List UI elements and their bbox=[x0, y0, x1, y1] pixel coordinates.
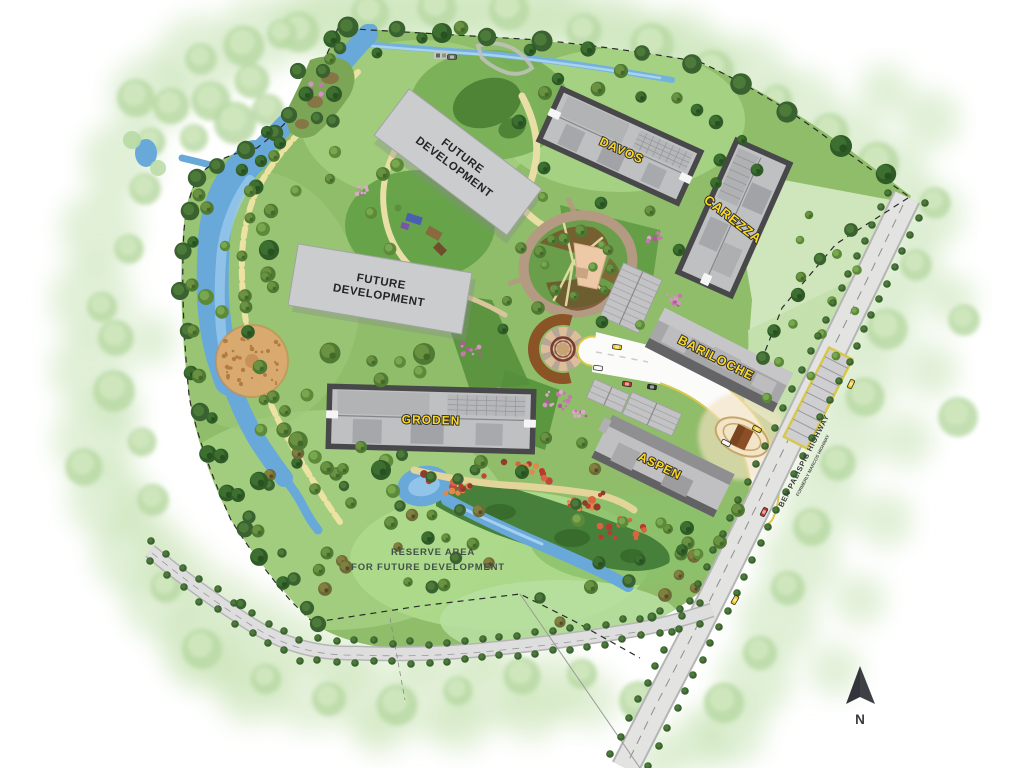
svg-text:N: N bbox=[855, 712, 865, 727]
svg-text:RESERVE AREA: RESERVE AREA bbox=[391, 547, 475, 558]
svg-text:FOR FUTURE DEVELOPMENT: FOR FUTURE DEVELOPMENT bbox=[351, 562, 505, 573]
svg-text:GRODEN: GRODEN bbox=[402, 412, 461, 428]
